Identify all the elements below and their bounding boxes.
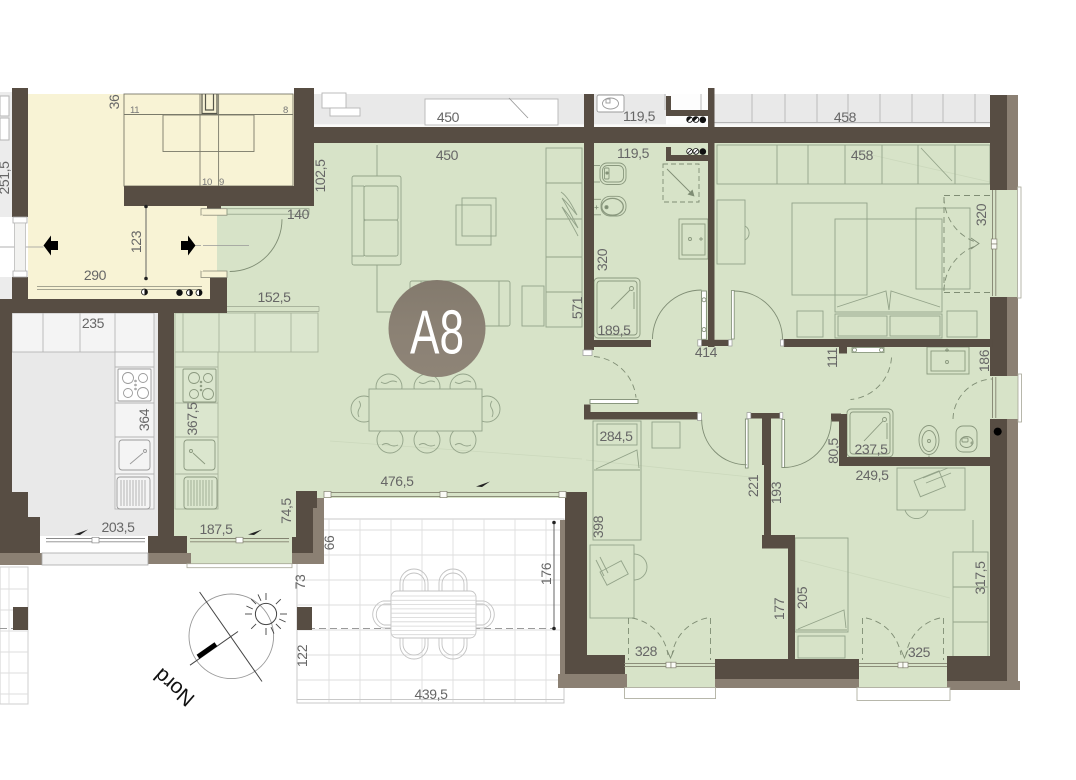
svg-text:102,5: 102,5 [312,159,328,193]
svg-text:187,5: 187,5 [199,521,233,537]
svg-text:11: 11 [130,105,139,116]
svg-text:367,5: 367,5 [184,402,200,436]
svg-text:398: 398 [590,515,606,538]
svg-text:73: 73 [292,574,308,589]
svg-text:450: 450 [436,147,459,163]
svg-text:476,5: 476,5 [380,473,414,489]
svg-text:235: 235 [82,315,105,331]
svg-text:458: 458 [834,109,857,125]
svg-text:439,5: 439,5 [414,686,448,702]
svg-text:193: 193 [768,481,784,504]
svg-text:152,5: 152,5 [257,289,291,305]
svg-text:414: 414 [695,344,718,360]
svg-text:328: 328 [635,643,658,659]
svg-text:123: 123 [128,230,144,253]
svg-text:119,5: 119,5 [617,145,650,161]
svg-text:203,5: 203,5 [101,519,135,535]
svg-text:140: 140 [287,206,310,222]
svg-text:36: 36 [106,94,122,109]
svg-text:237,5: 237,5 [854,441,888,457]
svg-text:186: 186 [976,349,992,372]
svg-text:317,5: 317,5 [972,561,988,595]
svg-text:176: 176 [538,562,554,585]
svg-text:221: 221 [745,474,761,497]
svg-text:119,5: 119,5 [623,108,656,124]
svg-text:205: 205 [794,586,810,609]
svg-text:290: 290 [84,267,107,283]
svg-text:364: 364 [136,408,152,431]
svg-text:80,5: 80,5 [825,438,841,464]
svg-text:66: 66 [321,535,337,550]
svg-text:74,5: 74,5 [278,498,294,524]
svg-text:284,5: 284,5 [599,428,633,444]
svg-text:450: 450 [437,109,460,125]
svg-text:251,5: 251,5 [0,161,12,195]
svg-text:320: 320 [594,248,610,271]
svg-text:189,5: 189,5 [597,322,631,338]
svg-text:A8: A8 [410,299,464,368]
svg-text:8: 8 [283,105,288,116]
svg-text:122: 122 [294,644,310,667]
svg-text:320: 320 [973,203,989,226]
svg-text:571: 571 [569,296,585,319]
svg-text:111: 111 [824,347,840,368]
svg-text:325: 325 [908,644,931,660]
svg-text:458: 458 [851,147,874,163]
svg-text:177: 177 [771,597,787,620]
svg-text:249,5: 249,5 [855,467,889,483]
